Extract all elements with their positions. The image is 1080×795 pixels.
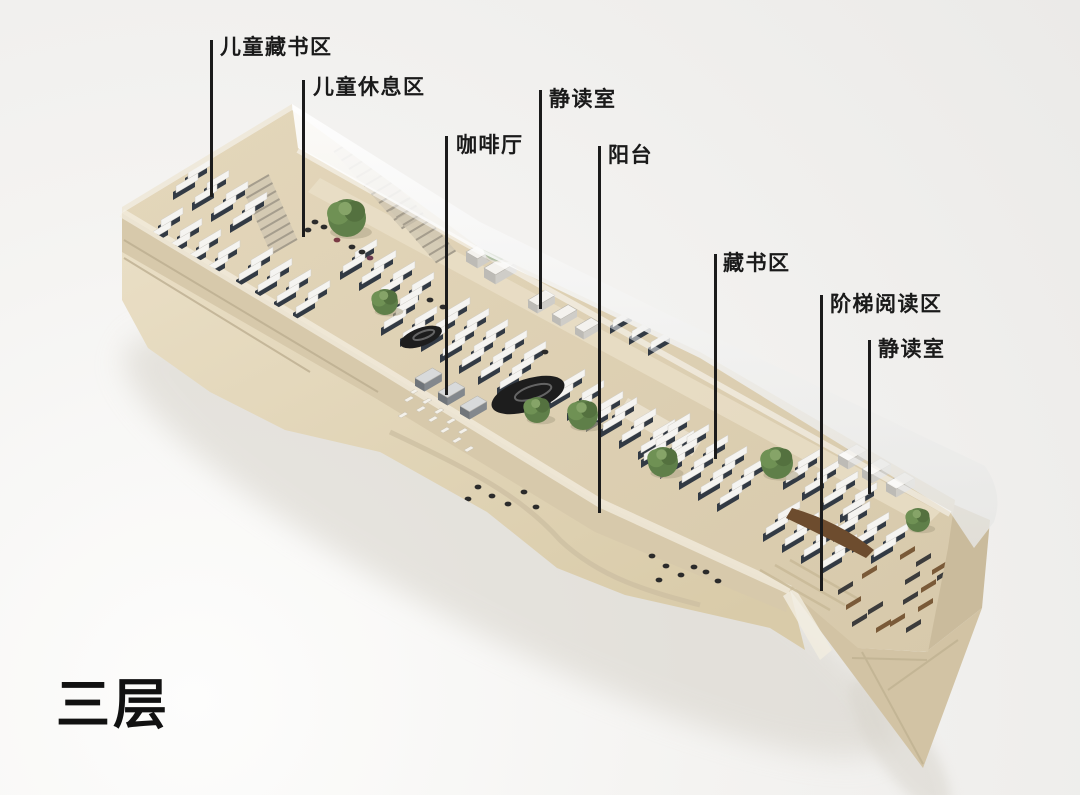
terrace-figure	[475, 485, 482, 490]
person-figure	[367, 256, 374, 261]
terrace-figure	[649, 554, 656, 559]
terrace-figure	[656, 578, 663, 583]
callout-label-5: 藏书区	[723, 252, 791, 275]
callout-label-3: 咖啡厅	[456, 134, 524, 157]
terrace-figure	[533, 505, 540, 510]
callout-label-2: 静读室	[549, 88, 617, 111]
terrace-figure	[678, 573, 685, 578]
floor-title: 三层	[56, 676, 170, 735]
callout-line-0	[210, 40, 213, 197]
library-floor-diagram: 儿童藏书区儿童休息区静读室咖啡厅阳台藏书区阶梯阅读区静读室 三层	[0, 0, 1080, 795]
terrace-figure	[715, 579, 722, 584]
person-figure	[349, 245, 356, 250]
terrace-figure	[505, 502, 512, 507]
callout-line-4	[598, 146, 601, 513]
callout-line-7	[868, 340, 871, 494]
person-figure	[305, 228, 312, 233]
callout-label-6: 阶梯阅读区	[830, 293, 943, 316]
callout-line-5	[714, 254, 717, 459]
callout-label-0: 儿童藏书区	[220, 36, 333, 59]
callout-label-7: 静读室	[878, 338, 946, 361]
bookshelf-cluster	[436, 159, 480, 197]
callout-line-3	[445, 136, 448, 395]
person-figure	[542, 350, 549, 355]
person-figure	[427, 298, 434, 303]
callout-label-1: 儿童休息区	[313, 76, 426, 99]
callout-line-1	[302, 80, 305, 237]
person-figure	[359, 250, 366, 255]
person-figure	[312, 220, 319, 225]
terrace-figure	[691, 565, 698, 570]
callout-line-6	[820, 295, 823, 591]
terrace-figure	[521, 490, 528, 495]
terrace-figure	[489, 494, 496, 499]
callout-line-2	[539, 90, 542, 309]
callout-label-4: 阳台	[608, 144, 653, 167]
person-figure	[321, 225, 328, 230]
terrace-figure	[663, 564, 670, 569]
terrace-figure	[703, 570, 710, 575]
person-figure	[334, 238, 341, 243]
